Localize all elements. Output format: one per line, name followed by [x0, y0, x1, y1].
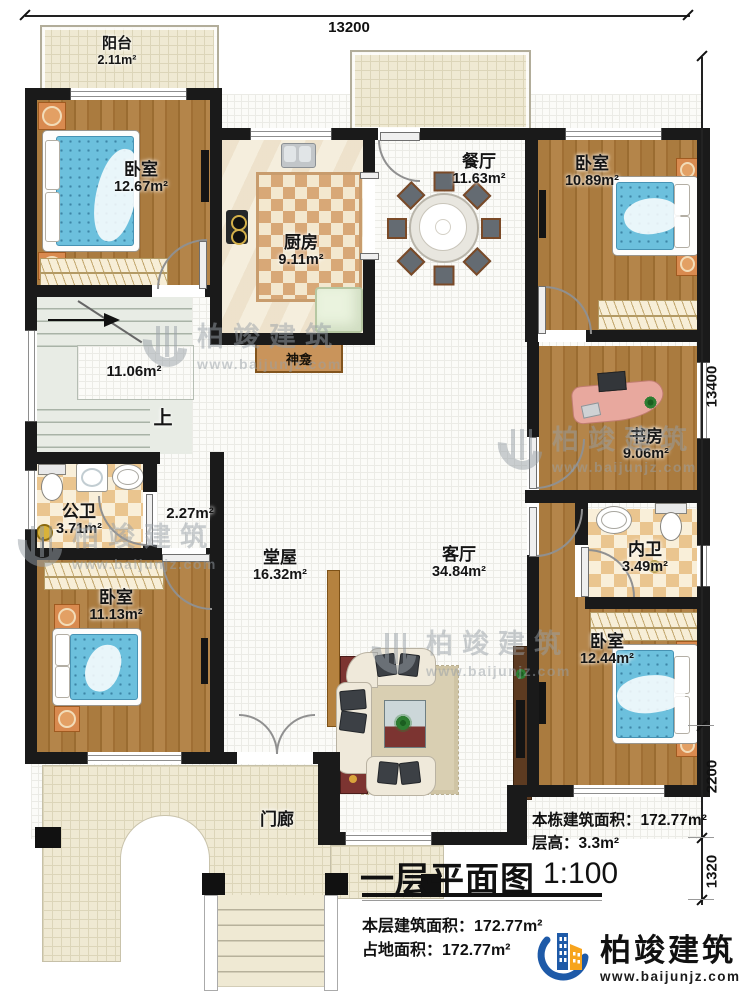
company-logo-icon [534, 930, 592, 989]
floor-plan: 神龛 [0, 0, 750, 992]
layer-titleblock: 本栋建筑面积：172.77m² 层高：3.3m² 一层平面图 1:100 本层建… [0, 0, 750, 992]
building-area-note: 本栋建筑面积：172.77m² [532, 808, 707, 830]
plan-scale: 1:100 [543, 857, 618, 891]
company-logo: 柏竣建筑 www.baijunjz.com [534, 930, 741, 989]
company-logo-url: www.baijunjz.com [600, 969, 741, 984]
title-rule [362, 893, 602, 897]
site-area-note: 占地面积：172.77m² [362, 936, 511, 960]
company-logo-text: 柏竣建筑 [600, 935, 741, 966]
title-rule-thin [362, 900, 602, 901]
floor-area-note: 本层建筑面积：172.77m² [362, 912, 543, 936]
storey-height-note: 层高：3.3m² [532, 831, 619, 853]
